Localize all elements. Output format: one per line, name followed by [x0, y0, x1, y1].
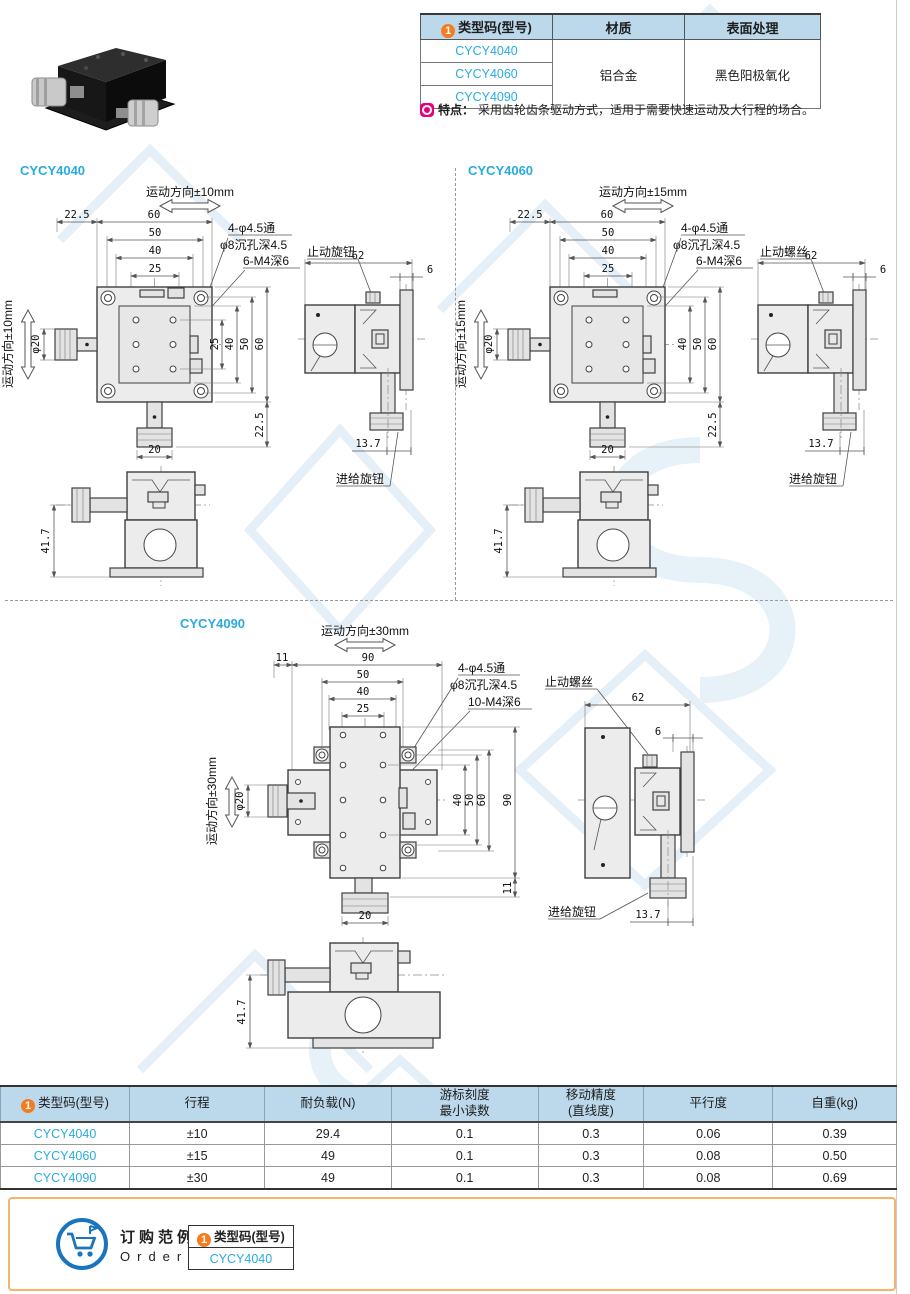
spec-parallelism: 0.08: [644, 1167, 773, 1190]
plan-view: [508, 278, 675, 447]
callout-tapped-hole: 6-M4深6: [243, 254, 289, 268]
vdim-11: 11: [502, 882, 514, 895]
spec-accuracy: 0.3: [538, 1145, 644, 1167]
dim-22-5: 22.5: [517, 209, 542, 221]
spec-header-accuracy: 移动精度(直线度): [538, 1086, 644, 1122]
spec-weight: 0.69: [773, 1167, 897, 1190]
stop-screw-label: 止动螺丝: [545, 675, 593, 689]
callout-counterbore: φ8沉孔深4.5: [450, 678, 517, 692]
dim-50: 50: [357, 669, 370, 681]
spec-row-cycy4060: CYCY4060 ±15 49 0.1 0.3 0.08 0.50: [1, 1145, 897, 1167]
dim-62: 62: [632, 692, 645, 704]
vdim-40: 40: [677, 338, 689, 351]
side-view-cycy4090: 止动螺丝 62 6: [530, 608, 730, 948]
dim-6: 6: [655, 726, 661, 738]
callout-counterbore: φ8沉孔深4.5: [673, 238, 740, 252]
drawing-section-cycy4040: CYCY4040 运动方向±10mm: [0, 160, 455, 600]
spec-model-link[interactable]: CYCY4060: [1, 1145, 130, 1167]
dim-50: 50: [149, 227, 162, 239]
callout-through-hole: 4-φ4.5通: [458, 661, 505, 675]
spec-header-travel: 行程: [130, 1086, 265, 1122]
stop-knob-label: 止动旋钮: [307, 244, 355, 259]
spec-header-parallelism: 平行度: [644, 1086, 773, 1122]
vdim-25: 25: [209, 338, 221, 351]
spec-travel: ±10: [130, 1122, 265, 1145]
material-cell: 铝合金: [553, 40, 685, 109]
spec-load: 29.4: [265, 1122, 391, 1145]
feature-note: 特点： 采用齿轮齿条驱动方式，适用于需要快速运动及大行程的场合。: [420, 101, 890, 118]
spec-weight: 0.50: [773, 1145, 897, 1167]
col-header-surface: 表面处理: [685, 14, 821, 40]
drawing-cycy4060: 运动方向±15mm 22.5 60 50 40 25: [453, 160, 898, 600]
col-header-material: 材质: [553, 14, 685, 40]
callout-through-hole: 4-φ4.5通: [681, 221, 728, 235]
side-view: 62 止动螺丝 6: [751, 245, 886, 486]
vdim-60: 60: [476, 794, 488, 807]
drawing-cycy4040: 运动方向±10mm 22.5 60 50 40 25: [0, 160, 455, 600]
spec-accuracy: 0.3: [538, 1167, 644, 1190]
knob-diameter-label: φ20: [483, 335, 495, 354]
plan-view: [55, 278, 222, 447]
vdim-40: 40: [452, 794, 464, 807]
dim-22-5: 22.5: [64, 209, 89, 221]
motion-v-label: 运动方向±30mm: [204, 757, 219, 845]
motion-direction-horizontal: 运动方向±30mm: [321, 623, 409, 652]
model-link-cycy4040[interactable]: CYCY4040: [421, 40, 553, 63]
spec-parallelism: 0.08: [644, 1145, 773, 1167]
catalog-page: 1类型码(型号) 材质 表面处理 CYCY4040 铝合金 黑色阳极氧化 CYC…: [0, 0, 910, 1294]
front-view: 41.7: [493, 466, 663, 586]
badge-1-icon: 1: [441, 24, 455, 38]
spec-row-cycy4090: CYCY4090 ±30 49 0.1 0.3 0.08 0.69: [1, 1167, 897, 1190]
dim-41-7: 41.7: [40, 528, 52, 553]
front-view: 41.7: [236, 937, 445, 1055]
model-link-cycy4060[interactable]: CYCY4060: [421, 63, 553, 86]
dim-50: 50: [602, 227, 615, 239]
dim-40: 40: [357, 686, 370, 698]
x-axis-knob: [55, 329, 77, 360]
drawing-section-cycy4090: CYCY4090 运动方向±30mm: [170, 608, 910, 1083]
spec-travel: ±15: [130, 1145, 265, 1167]
drawing-title-cycy4060: CYCY4060: [468, 163, 533, 178]
callout-counterbore: φ8沉孔深4.5: [220, 238, 287, 252]
spec-accuracy: 0.3: [538, 1122, 644, 1145]
spec-parallelism: 0.06: [644, 1122, 773, 1145]
plan-view: [268, 718, 448, 913]
spec-header-scale: 游标刻度最小读数: [391, 1086, 538, 1122]
spec-header-load: 耐负载(N): [265, 1086, 391, 1122]
front-knob: [72, 488, 90, 522]
dim-11: 11: [276, 652, 289, 664]
vdim-50: 50: [464, 794, 476, 807]
spec-table: 1类型码(型号) 行程 耐负载(N) 游标刻度最小读数 移动精度(直线度) 平行…: [0, 1085, 897, 1190]
dim-60: 60: [148, 209, 161, 221]
spec-load: 49: [265, 1145, 391, 1167]
plan-left-labels: φ20 运动方向±15mm: [453, 300, 508, 388]
spec-scale: 0.1: [391, 1145, 538, 1167]
feature-bullet-icon: [420, 103, 434, 117]
dim-13-7: 13.7: [808, 438, 833, 450]
dim-13-7: 13.7: [355, 438, 380, 450]
motion-h-label: 运动方向±15mm: [599, 184, 687, 199]
feature-text: 采用齿轮齿条驱动方式，适用于需要快速运动及大行程的场合。: [478, 101, 814, 118]
vdim-50: 50: [692, 338, 704, 351]
vdim-40: 40: [224, 338, 236, 351]
spec-row-cycy4040: CYCY4040 ±10 29.4 0.1 0.3 0.06 0.39: [1, 1122, 897, 1145]
dim-13-7: 13.7: [635, 909, 660, 921]
spec-travel: ±30: [130, 1167, 265, 1190]
feature-label: 特点：: [438, 101, 474, 118]
front-knob: [268, 960, 285, 995]
dim-40: 40: [149, 245, 162, 257]
spec-weight: 0.39: [773, 1122, 897, 1145]
vdim-22-5: 22.5: [707, 412, 719, 437]
spec-model-link[interactable]: CYCY4040: [1, 1122, 130, 1145]
surface-cell: 黑色阳极氧化: [685, 40, 821, 109]
double-arrow-icon: [613, 200, 673, 213]
vdim-50: 50: [239, 338, 251, 351]
knob-diameter-label: φ20: [234, 792, 246, 811]
motion-h-label: 运动方向±10mm: [146, 184, 234, 199]
dim-25: 25: [149, 263, 162, 275]
double-arrow-icon: [160, 200, 220, 213]
dim-60: 60: [601, 209, 614, 221]
dim-6: 6: [880, 264, 886, 276]
callout-through-hole: 4-φ4.5通: [228, 221, 275, 235]
callout-tapped-hole: 10-M4深6: [468, 695, 521, 709]
motion-v-label: 运动方向±15mm: [453, 300, 468, 388]
drawing-title-cycy4040: CYCY4040: [20, 163, 85, 178]
spec-scale: 0.1: [391, 1122, 538, 1145]
callout-tapped-hole: 6-M4深6: [696, 254, 742, 268]
dim-40: 40: [602, 245, 615, 257]
x-axis-knob: [268, 785, 287, 817]
col-header-model: 1类型码(型号): [421, 14, 553, 40]
spec-load: 49: [265, 1167, 391, 1190]
dim-20: 20: [359, 910, 372, 922]
dim-20: 20: [601, 444, 614, 456]
motion-h-label: 运动方向±30mm: [321, 623, 409, 638]
feed-knob-label: 进给旋钮: [789, 471, 837, 486]
order-example-box: 订购范例 Order 1类型码(型号) CYCY4040: [8, 1197, 896, 1291]
feed-knob-label: 进给旋钮: [336, 471, 384, 486]
dim-6: 6: [427, 264, 433, 276]
product-photo: [28, 12, 180, 136]
double-arrow-icon: [335, 639, 395, 652]
front-view: 41.7: [40, 466, 210, 586]
badge-1-icon: 1: [21, 1099, 35, 1113]
product-table: 1类型码(型号) 材质 表面处理 CYCY4040 铝合金 黑色阳极氧化 CYC…: [420, 13, 821, 109]
knob-diameter-label: φ20: [30, 335, 42, 354]
order-model-code[interactable]: CYCY4040: [189, 1248, 294, 1270]
stop-screw: [643, 755, 657, 767]
spec-model-link[interactable]: CYCY4090: [1, 1167, 130, 1190]
x-axis-knob: [508, 329, 530, 360]
side-view: 止动螺丝 62 6: [545, 675, 705, 926]
spec-header-model: 1类型码(型号): [1, 1086, 130, 1122]
stop-knob: [366, 292, 380, 303]
drawing-section-cycy4060: CYCY4060 运动方向±15mm: [453, 160, 910, 600]
order-code-table: 1类型码(型号) CYCY4040: [188, 1225, 294, 1270]
order-title-cn: 订购范例: [120, 1226, 196, 1247]
drawing-title-cycy4090: CYCY4090: [180, 616, 245, 631]
feed-knob-side: [370, 413, 403, 430]
badge-1-icon: 1: [197, 1233, 211, 1247]
side-view: 62 止动旋钮 6: [298, 244, 433, 486]
vdim-60: 60: [254, 338, 266, 351]
feed-knob-label: 进给旋钮: [548, 904, 596, 919]
motion-v-label: 运动方向±10mm: [0, 300, 15, 388]
order-title-en: Order: [120, 1249, 188, 1264]
table-row: CYCY4040 铝合金 黑色阳极氧化: [421, 40, 821, 63]
dim-90: 90: [362, 652, 375, 664]
section-divider-horizontal: [5, 600, 893, 601]
plan-left-labels: φ20 运动方向±10mm: [0, 300, 55, 388]
feed-knob-side: [823, 413, 856, 430]
dim-25: 25: [357, 703, 370, 715]
stop-screw-label: 止动螺丝: [760, 245, 808, 259]
front-knob: [525, 488, 543, 522]
dim-20: 20: [148, 444, 161, 456]
stop-screw: [819, 292, 833, 303]
vdim-90: 90: [502, 794, 514, 807]
dim-25: 25: [602, 263, 615, 275]
vdim-22-5: 22.5: [254, 412, 266, 437]
dim-41-7: 41.7: [493, 528, 505, 553]
order-header: 1类型码(型号): [189, 1226, 294, 1248]
plan-left-labels: φ20 运动方向±30mm: [204, 757, 268, 845]
dim-41-7: 41.7: [236, 999, 248, 1024]
front-view-cycy4090: 41.7: [230, 933, 470, 1063]
cart-icon: [54, 1216, 110, 1272]
vdim-60: 60: [707, 338, 719, 351]
spec-header-weight: 自重(kg): [773, 1086, 897, 1122]
spec-scale: 0.1: [391, 1167, 538, 1190]
